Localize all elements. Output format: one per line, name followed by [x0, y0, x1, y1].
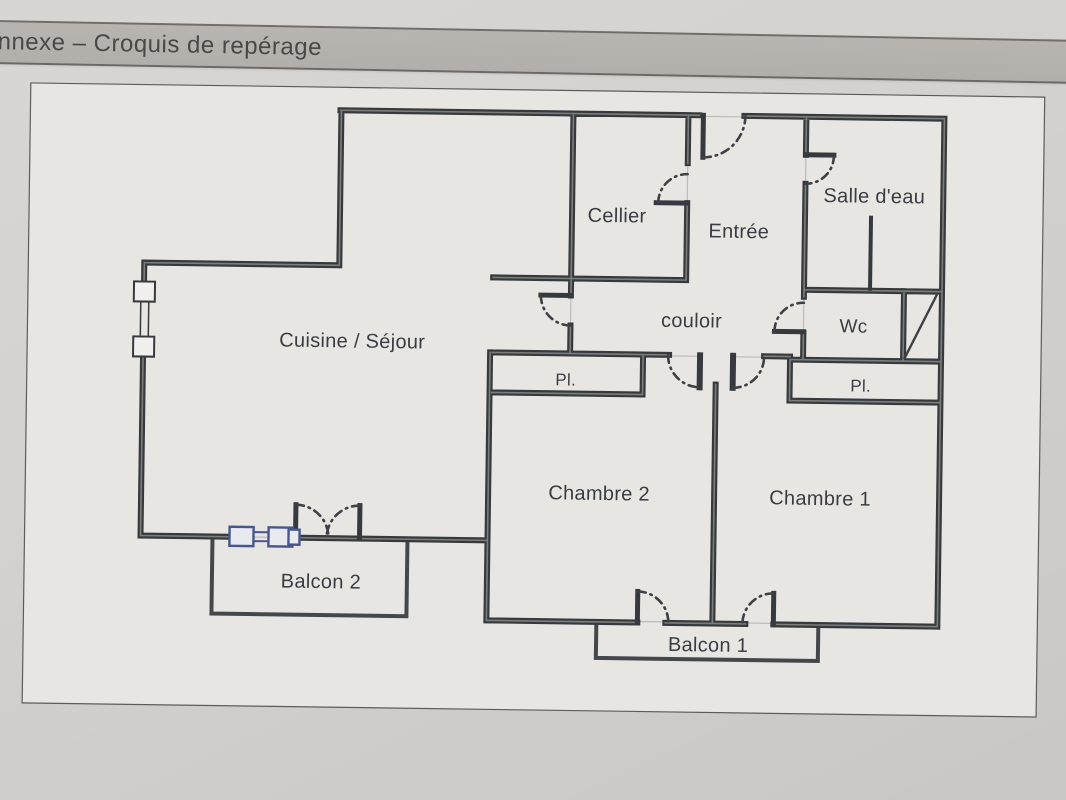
room-label-balcon1: Balcon 1 [668, 634, 749, 657]
room-label-chambre2: Chambre 2 [548, 482, 650, 505]
closet-label-chambre2: Pl. [555, 370, 576, 389]
room-label-entree: Entrée [708, 220, 769, 243]
room-label-chambre1: Chambre 1 [769, 487, 871, 510]
room-label-balcon2: Balcon 2 [281, 570, 362, 593]
room-label-couloir: couloir [661, 310, 722, 333]
room-label-salle-deau: Salle d'eau [823, 185, 925, 208]
photographed-document: { "header": { "title": "nnexe – Croquis … [0, 0, 1066, 800]
floor-plan-figure: Cellier Entrée Salle d'eau couloir Wc Pl… [0, 0, 1066, 800]
room-label-cellier: Cellier [587, 205, 646, 228]
shower-partition-line [870, 216, 871, 291]
room-label-wc: Wc [839, 316, 867, 337]
room-label-cuisine-sejour: Cuisine / Séjour [279, 329, 425, 353]
floor-plan-page-group: Cellier Entrée Salle d'eau couloir Wc Pl… [22, 83, 1045, 717]
closet-label-chambre1: Pl. [850, 376, 871, 395]
